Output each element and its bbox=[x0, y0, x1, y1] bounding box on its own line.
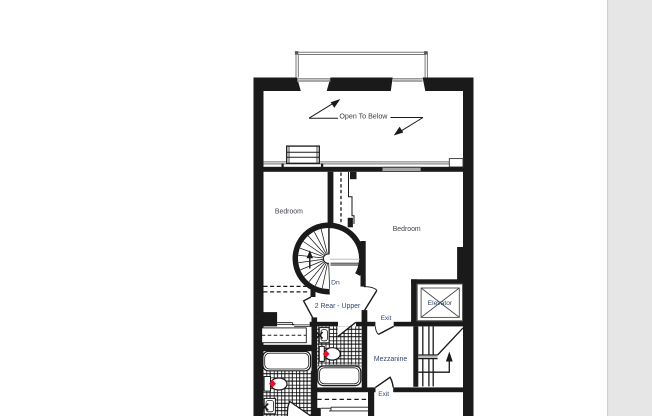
svg-text:Open To Below: Open To Below bbox=[339, 113, 388, 121]
svg-text:Elevator: Elevator bbox=[428, 300, 453, 307]
svg-text:Bedroom: Bedroom bbox=[275, 208, 303, 215]
svg-text:Mezzanine: Mezzanine bbox=[374, 356, 407, 363]
svg-text:Dn: Dn bbox=[331, 279, 340, 286]
svg-text:2 Rear - Upper: 2 Rear - Upper bbox=[315, 303, 361, 310]
svg-text:Bedroom: Bedroom bbox=[393, 226, 421, 233]
svg-text:Exit: Exit bbox=[381, 315, 392, 322]
svg-text:Exit: Exit bbox=[378, 391, 389, 398]
